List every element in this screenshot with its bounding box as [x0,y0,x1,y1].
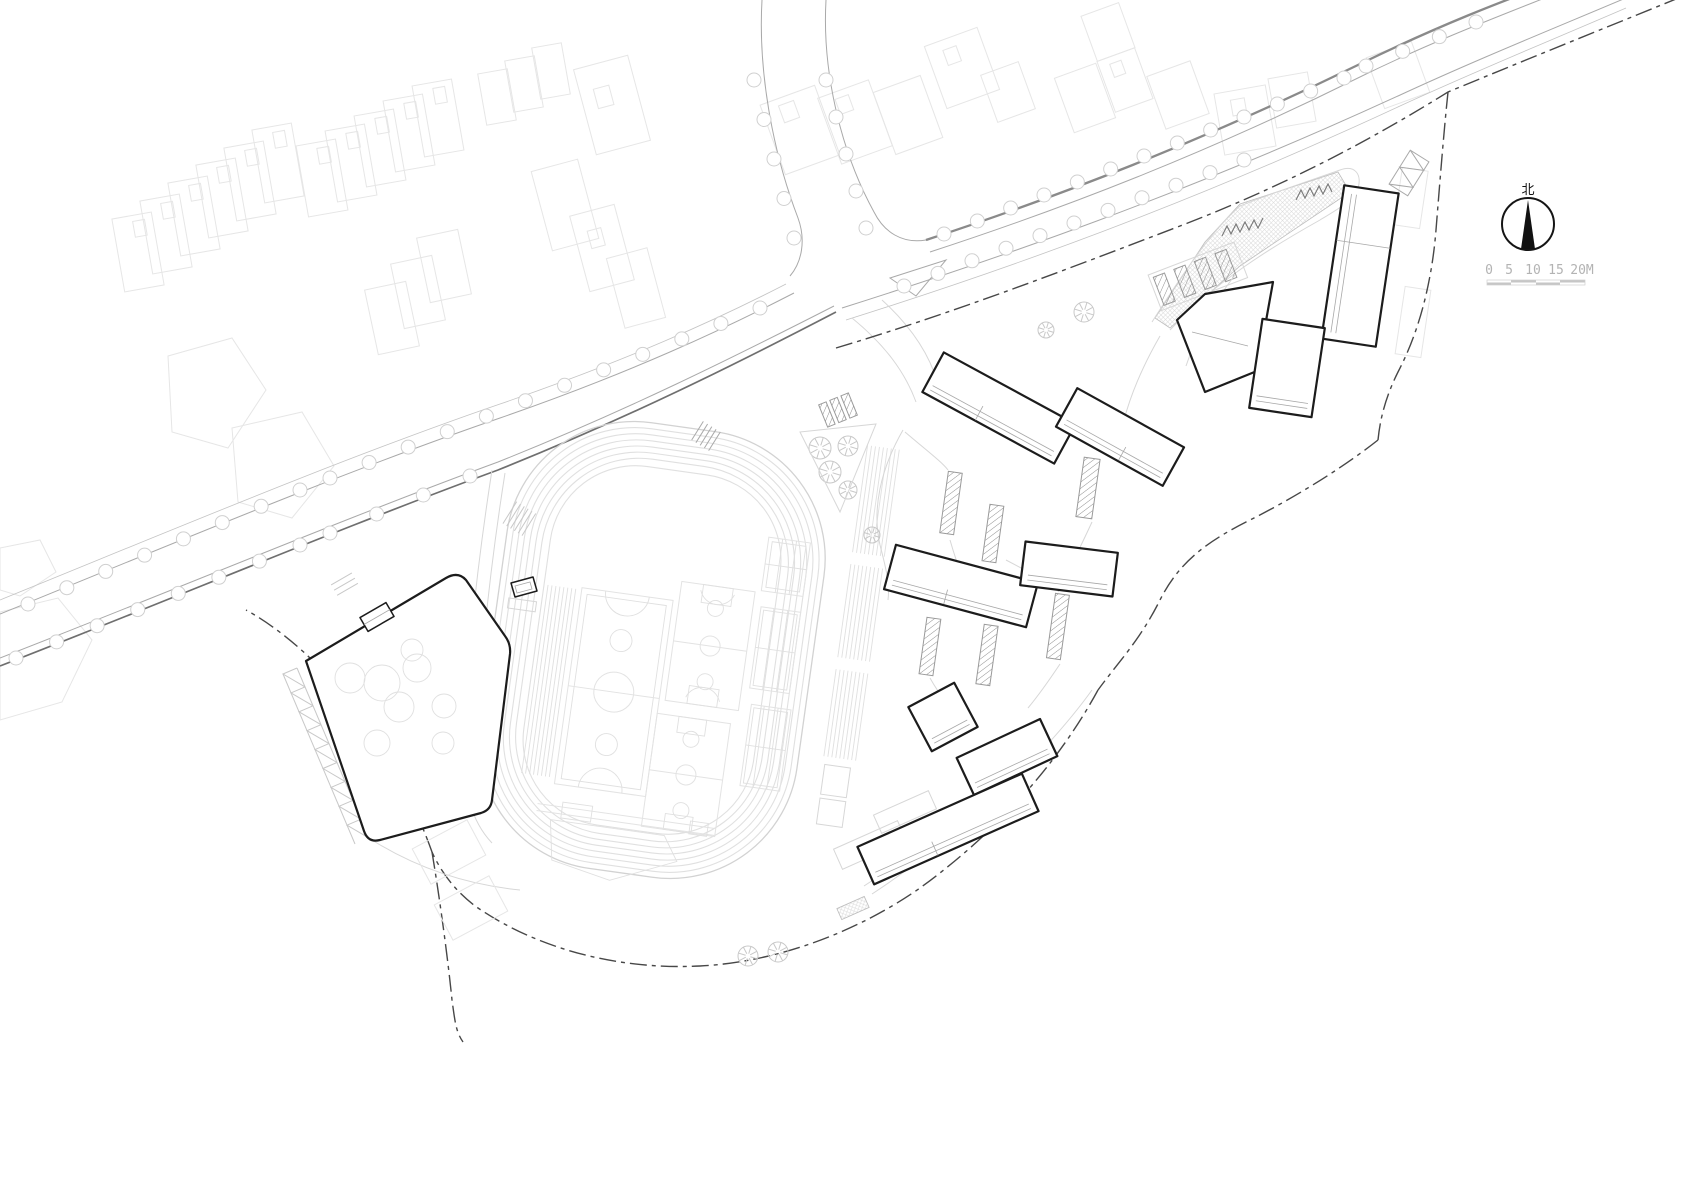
scale-tick-0: 0 [1485,263,1493,278]
tree-symbol [838,436,858,456]
hall-north-steps [331,573,358,595]
scale-tick-15: 15 [1548,263,1564,278]
building-block-a [922,352,1075,463]
scale-tick-5: 5 [1505,263,1513,278]
building-block-east [1249,319,1325,417]
court-strip-2 [740,704,791,791]
road-sidewalk-north [0,284,786,600]
school-buildings-layer [306,185,1399,884]
field-sector [543,820,680,890]
scale-tick-10: 10 [1525,263,1541,278]
context-cluster-east-edge [1394,167,1431,357]
scale-bar-segments [1487,280,1585,285]
site-paths-layer [283,150,1429,940]
tree-symbol [819,461,841,483]
walkway-4 [919,617,941,675]
north-label: 北 [1521,183,1534,198]
walkway-5 [976,624,998,685]
court-basketball-2 [641,713,730,836]
boundary-southeast [1098,440,1378,690]
north-arrow: 北 [1502,183,1554,250]
site-plan-page: 北 0 5 10 15 20M [0,0,1700,1202]
building-block-h [857,774,1038,885]
building-block-c [884,545,1038,627]
east-terraces [814,445,899,828]
walkway-2 [982,504,1004,562]
southwest-path [372,840,520,890]
running-track-outer [462,405,842,895]
scale-tick-20m: 20M [1570,263,1594,278]
parking-stalls-junction [819,393,858,427]
context-cluster-top-road [760,27,1035,174]
ramp-hatch-northeast [1389,150,1429,196]
crosswalk-ladder [692,421,721,450]
court-left [554,588,673,797]
boundary-southwest-tail [432,852,463,1042]
building-block-b [1056,388,1184,486]
site-plan-drawing: 北 0 5 10 15 20M [0,0,1700,1202]
infield-west-steps [522,585,576,777]
north-arrow-needle [1521,200,1535,249]
context-polygons-west-edge [0,540,92,720]
walkway-1 [940,471,962,534]
context-terrace-chain-mid [296,79,464,217]
sports-ground [461,405,842,904]
court-basketball-1 [665,581,755,710]
building-tower [1321,185,1398,346]
building-block-e [908,683,977,752]
tree-symbol [1074,302,1094,322]
context-polygons-southwest [168,229,471,518]
context-cluster-north-center [531,55,665,328]
context-terrace-chain-north [478,43,571,125]
context-terrace-chain-west [112,123,304,292]
scale-bar: 0 5 10 15 20M [1485,263,1594,285]
tree-symbol [1038,322,1054,338]
tree-symbol [839,481,857,499]
entrance-drive-edge-1 [852,318,916,402]
walkway-3 [1076,457,1100,519]
site-boundary-line [246,0,1698,1042]
tree-symbol [738,946,758,966]
walkway-6 [1046,593,1069,659]
